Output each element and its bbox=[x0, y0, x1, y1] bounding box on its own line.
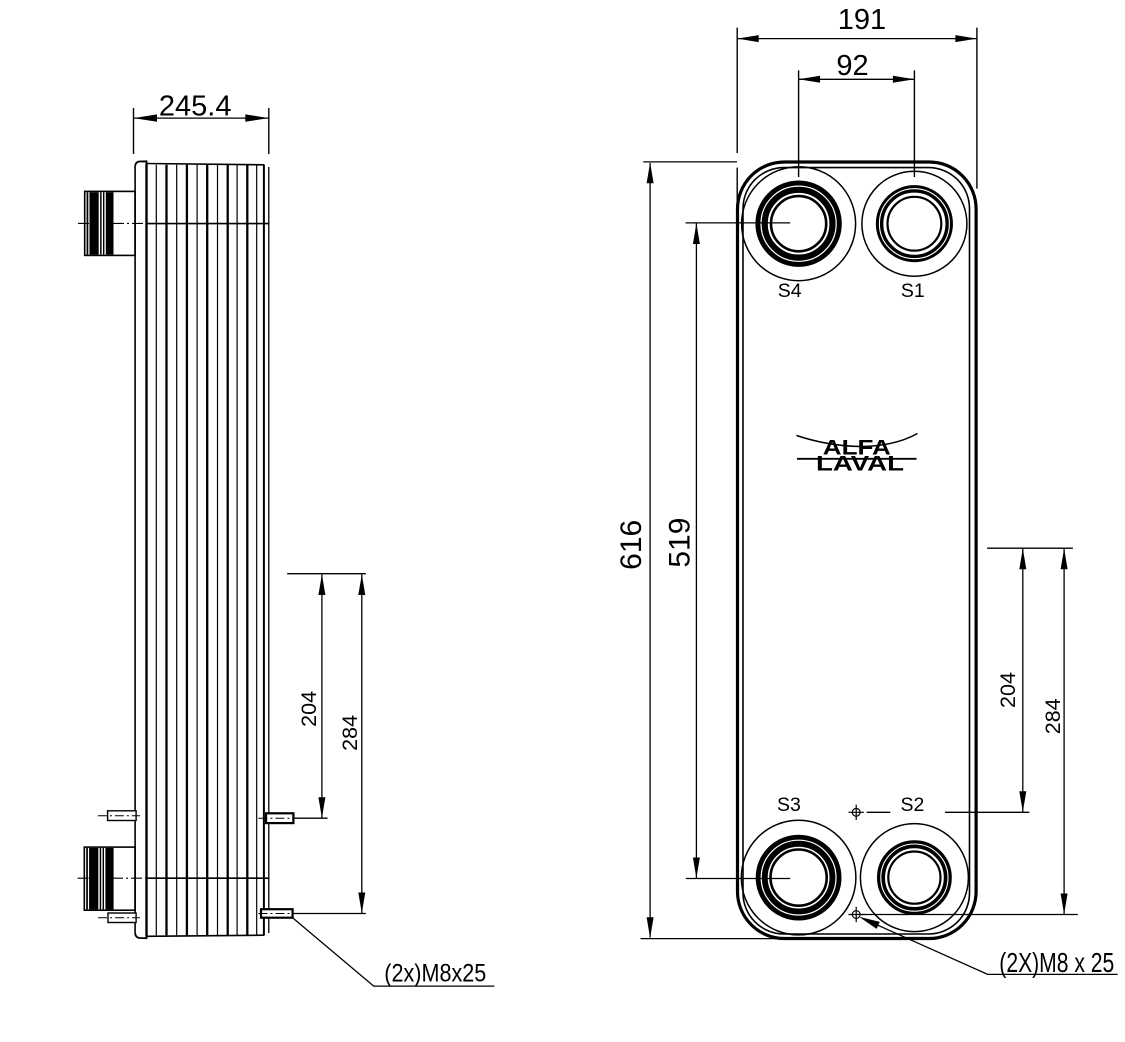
svg-text:284: 284 bbox=[338, 715, 362, 751]
svg-text:(2X)M8 x 25: (2X)M8 x 25 bbox=[999, 947, 1114, 978]
svg-text:S1: S1 bbox=[901, 280, 925, 302]
svg-text:519: 519 bbox=[664, 518, 697, 568]
svg-text:S2: S2 bbox=[900, 794, 924, 816]
svg-text:S3: S3 bbox=[777, 794, 801, 816]
svg-text:616: 616 bbox=[615, 520, 648, 570]
svg-text:92: 92 bbox=[836, 50, 868, 82]
svg-text:(2x)M8x25: (2x)M8x25 bbox=[384, 960, 486, 988]
svg-text:204: 204 bbox=[996, 672, 1020, 708]
svg-text:LAVAL: LAVAL bbox=[816, 453, 904, 476]
svg-text:245.4: 245.4 bbox=[159, 90, 232, 122]
svg-text:S4: S4 bbox=[778, 280, 802, 302]
svg-text:284: 284 bbox=[1041, 698, 1065, 734]
svg-text:191: 191 bbox=[838, 4, 886, 36]
svg-text:204: 204 bbox=[297, 691, 321, 727]
